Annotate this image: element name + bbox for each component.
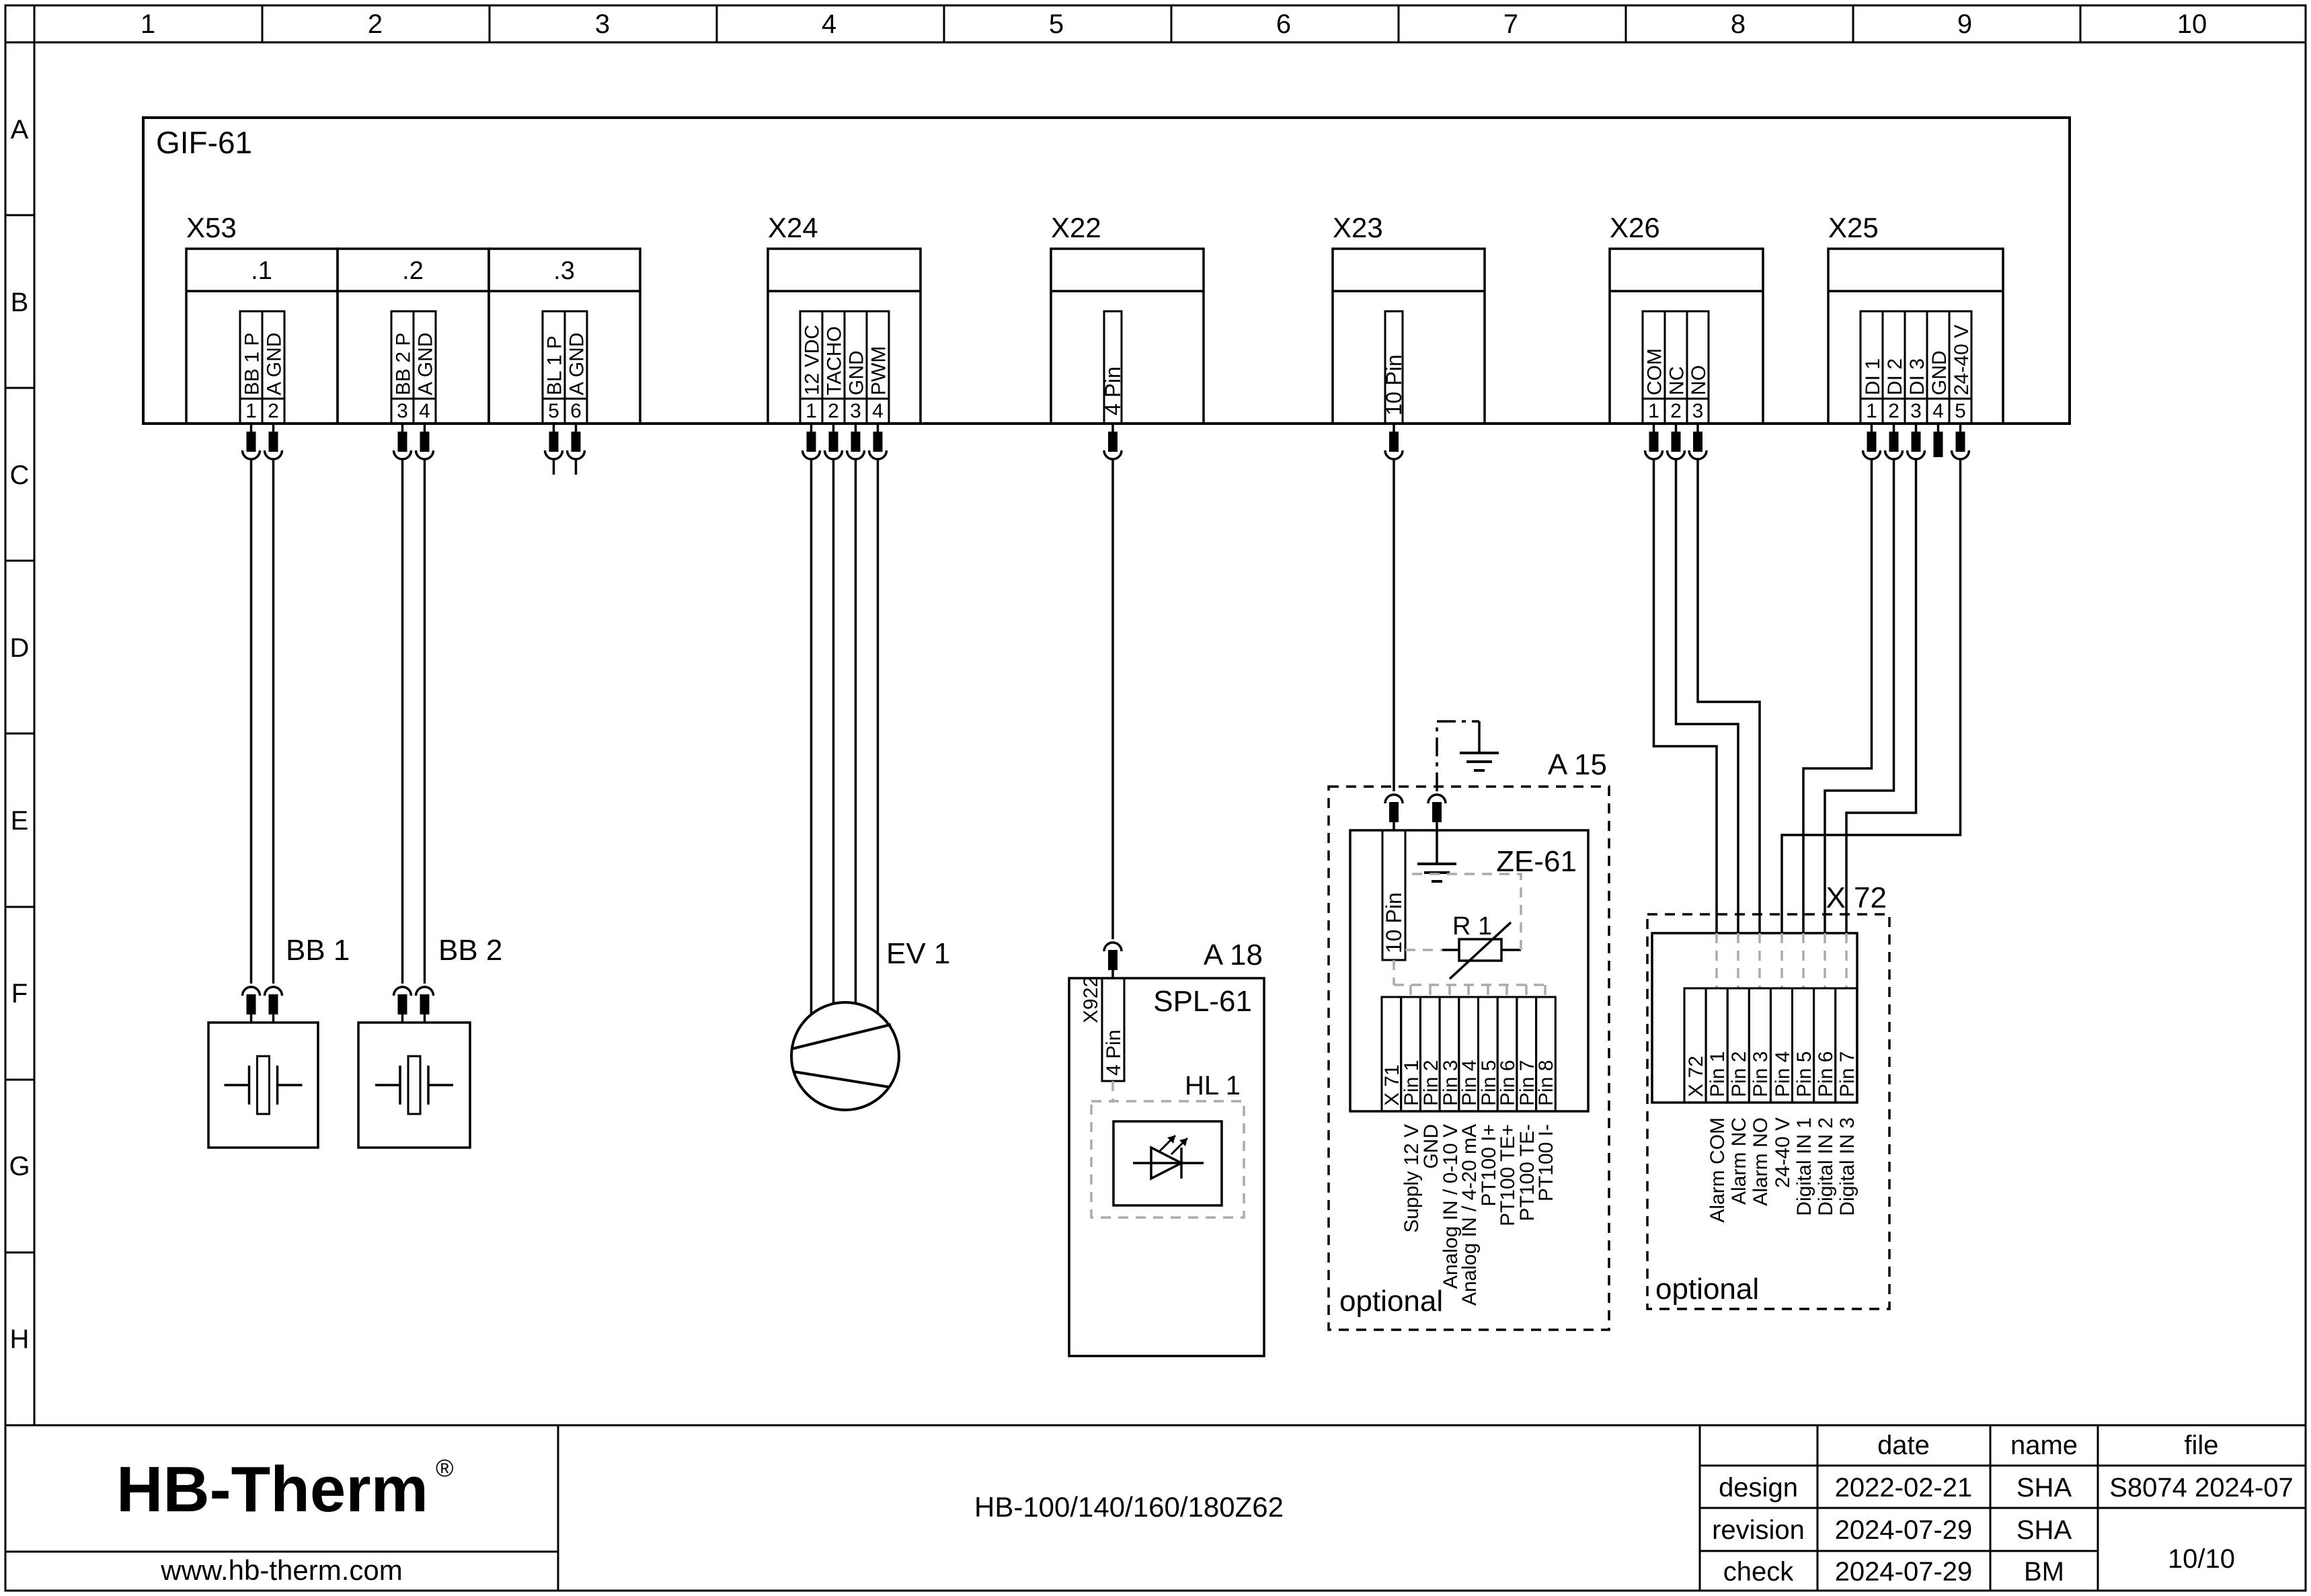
optional-label: optional	[1655, 1273, 1759, 1306]
module-ref: A 15	[1548, 748, 1607, 781]
crystal-icon	[225, 1056, 303, 1114]
signal-label: Digital IN 2	[1815, 1117, 1837, 1216]
pin-number: 5	[548, 400, 559, 422]
pin-number: 1	[245, 400, 257, 422]
device-ev1: EV 1	[791, 937, 950, 1110]
pin-signal: A GND	[566, 333, 588, 395]
col-label: 8	[1731, 9, 1746, 39]
crystal-icon	[375, 1056, 453, 1114]
col-label: 3	[595, 9, 610, 39]
row-label: B	[11, 288, 29, 317]
title-block: HB-Therm ® www.hb-therm.com HB-100/140/1…	[5, 1425, 2306, 1591]
cell-label: Pin 7	[1836, 1051, 1858, 1097]
connector-x25: X25 DI 1 DI 2 DI 3 GND 24-40 V 1 2 3 4 5	[1828, 212, 2003, 424]
pin-number: 2	[1888, 400, 1899, 422]
cell-label: Pin 3	[1750, 1051, 1772, 1097]
pin-number: 3	[397, 400, 408, 422]
pin-count-label: 4 Pin	[1101, 366, 1125, 415]
row-name: SHA	[2016, 1473, 2072, 1503]
row-date: 2024-07-29	[1835, 1515, 1973, 1545]
row-date: 2022-02-21	[1835, 1473, 1973, 1503]
row-label: G	[9, 1152, 30, 1181]
group-label: .3	[553, 257, 575, 285]
th-date: date	[1877, 1431, 1930, 1460]
pin-signal: NC	[1666, 366, 1688, 395]
resistor-label: R 1	[1452, 912, 1492, 941]
device-ref: A 18	[1204, 939, 1263, 971]
pin-number: 3	[1692, 400, 1704, 422]
col-label: 7	[1503, 9, 1518, 39]
row-label: H	[10, 1324, 30, 1354]
col-label: 1	[141, 9, 155, 39]
device-bb2: BB 2	[358, 934, 502, 1148]
fan-icon	[791, 1002, 899, 1110]
wires	[251, 460, 1961, 1015]
pin-number: 4	[419, 400, 430, 422]
signal-label: Alarm NO	[1750, 1117, 1772, 1206]
pin-signal: TACHO	[824, 326, 846, 395]
pin-number: 3	[850, 400, 861, 422]
pin-signal: BL 1 P	[544, 335, 566, 395]
pin-signal: GND	[846, 350, 868, 395]
registered-mark: ®	[436, 1454, 454, 1482]
col-label: 4	[822, 9, 836, 39]
group-label: .1	[251, 257, 272, 285]
signal-label: Alarm COM	[1707, 1117, 1729, 1223]
pin-signal: A GND	[264, 333, 286, 395]
pin-signal: GND	[1928, 350, 1951, 395]
pin-signal: COM	[1644, 348, 1666, 395]
pin-signal: A GND	[415, 333, 437, 395]
signal-label: Alarm NC	[1728, 1117, 1750, 1205]
signal-label: PT100 I-	[1535, 1124, 1557, 1201]
signal-label: Digital IN 3	[1836, 1117, 1858, 1216]
device-name: SPL-61	[1153, 985, 1252, 1018]
col-label: 10	[2177, 9, 2207, 39]
connector-x23: X23 10 Pin	[1333, 212, 1485, 424]
group-label: .2	[402, 257, 424, 285]
pin-number: 4	[1932, 400, 1944, 422]
connector-x53: X53 .1 .2 .3 BB 1 P A GND BB 2 P A GND B…	[186, 212, 640, 424]
connector-label: X25	[1828, 212, 1879, 243]
pin-count-label: 10 Pin	[1382, 354, 1406, 415]
pin-number: 2	[268, 400, 279, 422]
pin-signal: 24-40 V	[1951, 325, 1973, 395]
row-name: SHA	[2016, 1515, 2072, 1545]
th-file: file	[2184, 1431, 2218, 1460]
connector-label: X23	[1333, 212, 1383, 243]
col-label: 2	[368, 9, 383, 39]
ground-icon	[1460, 753, 1499, 770]
row-label: F	[11, 979, 28, 1008]
col-label: 9	[1957, 9, 1972, 39]
led-icon	[1133, 1135, 1204, 1179]
schematic-page: 1 2 3 4 5 6 7 8 9 10 A B C D E F G H GIF…	[0, 0, 2311, 1596]
device-spl61: A 18 SPL-61 X922 4 Pin HL 1	[1069, 939, 1264, 1356]
logo-text: HB-Therm	[116, 1453, 428, 1525]
connector-label: X22	[1051, 212, 1101, 243]
row-label: design	[1719, 1473, 1798, 1503]
signal-label: Digital IN 1	[1793, 1117, 1815, 1216]
row-label: revision	[1712, 1515, 1805, 1545]
module-a15-ze61: A 15 optional ZE-61 10 Pin R 1	[1329, 721, 1609, 1330]
ground-icon	[1417, 864, 1456, 881]
col-label: 6	[1276, 9, 1291, 39]
signal-label: 24-40 V	[1772, 1117, 1794, 1188]
lamp-label: HL 1	[1185, 1071, 1241, 1101]
connector-label: X53	[186, 212, 237, 243]
connector-x24: X24 12 VDC TACHO GND PWM 1 2 3 4	[768, 212, 921, 424]
website: www.hb-therm.com	[160, 1554, 402, 1586]
row-date: 2024-07-29	[1835, 1557, 1973, 1587]
pin-number: 2	[1670, 400, 1682, 422]
pin-signal: DI 3	[1906, 358, 1928, 395]
drawing-title: HB-100/140/160/180Z62	[974, 1491, 1284, 1523]
plug-connector-icons	[243, 424, 1969, 459]
cell-label: Pin 8	[1535, 1060, 1557, 1106]
row-label: A	[11, 115, 29, 145]
pin-number: 1	[1648, 400, 1659, 422]
connector-label: X24	[768, 212, 818, 243]
cell-label: Pin 5	[1793, 1051, 1815, 1097]
pin-signal: DI 1	[1862, 358, 1884, 395]
device-label: EV 1	[886, 937, 950, 970]
pin-signal: BB 1 P	[241, 333, 264, 395]
module-ref: X 72	[1826, 881, 1887, 914]
pin-number: 4	[872, 400, 884, 422]
th-name: name	[2010, 1431, 2078, 1460]
sheet-number: 10/10	[2168, 1544, 2235, 1574]
board-label: GIF-61	[156, 125, 252, 160]
col-label: 5	[1049, 9, 1064, 39]
pin-number: 5	[1955, 400, 1966, 422]
module-x72: X 72 optional X 72 Pin 1 Pin 2 Pin 3 Pin…	[1647, 881, 1889, 1309]
file-ref: S8074 2024-07	[2109, 1473, 2294, 1503]
device-label: BB 1	[286, 934, 350, 967]
row-label: E	[11, 806, 29, 836]
pin-number: 1	[1866, 400, 1877, 422]
varistor-icon: R 1	[1442, 912, 1521, 979]
cell-label: Pin 2	[1728, 1051, 1750, 1097]
pin-signal: NO	[1688, 365, 1710, 395]
pin-count-label: 10 Pin	[1382, 892, 1406, 953]
pin-number: 6	[570, 400, 582, 422]
pin-number: 3	[1910, 400, 1922, 422]
cell-label: Pin 1	[1707, 1051, 1729, 1097]
pin-signal: 12 VDC	[801, 325, 824, 395]
device-label: BB 2	[438, 934, 502, 967]
device-bb1: BB 1	[208, 934, 350, 1148]
pin-count-label: 4 Pin	[1103, 1030, 1125, 1076]
gnd-stub-pin	[1934, 424, 1943, 457]
pin-number: 1	[806, 400, 817, 422]
cell-label: Pin 4	[1772, 1051, 1794, 1097]
pin-signal: DI 2	[1884, 358, 1906, 395]
row-label: C	[10, 461, 30, 490]
pin-signal: BB 2 P	[393, 333, 415, 395]
connector-x22: X22 4 Pin	[1051, 212, 1204, 424]
optional-label: optional	[1339, 1285, 1443, 1318]
pin-number: 2	[828, 400, 839, 422]
row-label: D	[10, 633, 30, 663]
grid-column-labels: 1 2 3 4 5 6 7 8 9 10	[141, 9, 2207, 39]
connector-label: X26	[1610, 212, 1660, 243]
pin-signal: PWM	[868, 346, 890, 395]
connector-label: X922	[1080, 976, 1102, 1023]
cell-label: X 72	[1685, 1055, 1707, 1097]
connector-x26: X26 COM NC NO 1 2 3	[1610, 212, 1763, 424]
row-name: BM	[2024, 1557, 2064, 1587]
row-label: check	[1723, 1557, 1794, 1587]
hb-therm-logo: HB-Therm ®	[116, 1453, 454, 1525]
cell-label: Pin 6	[1815, 1051, 1837, 1097]
